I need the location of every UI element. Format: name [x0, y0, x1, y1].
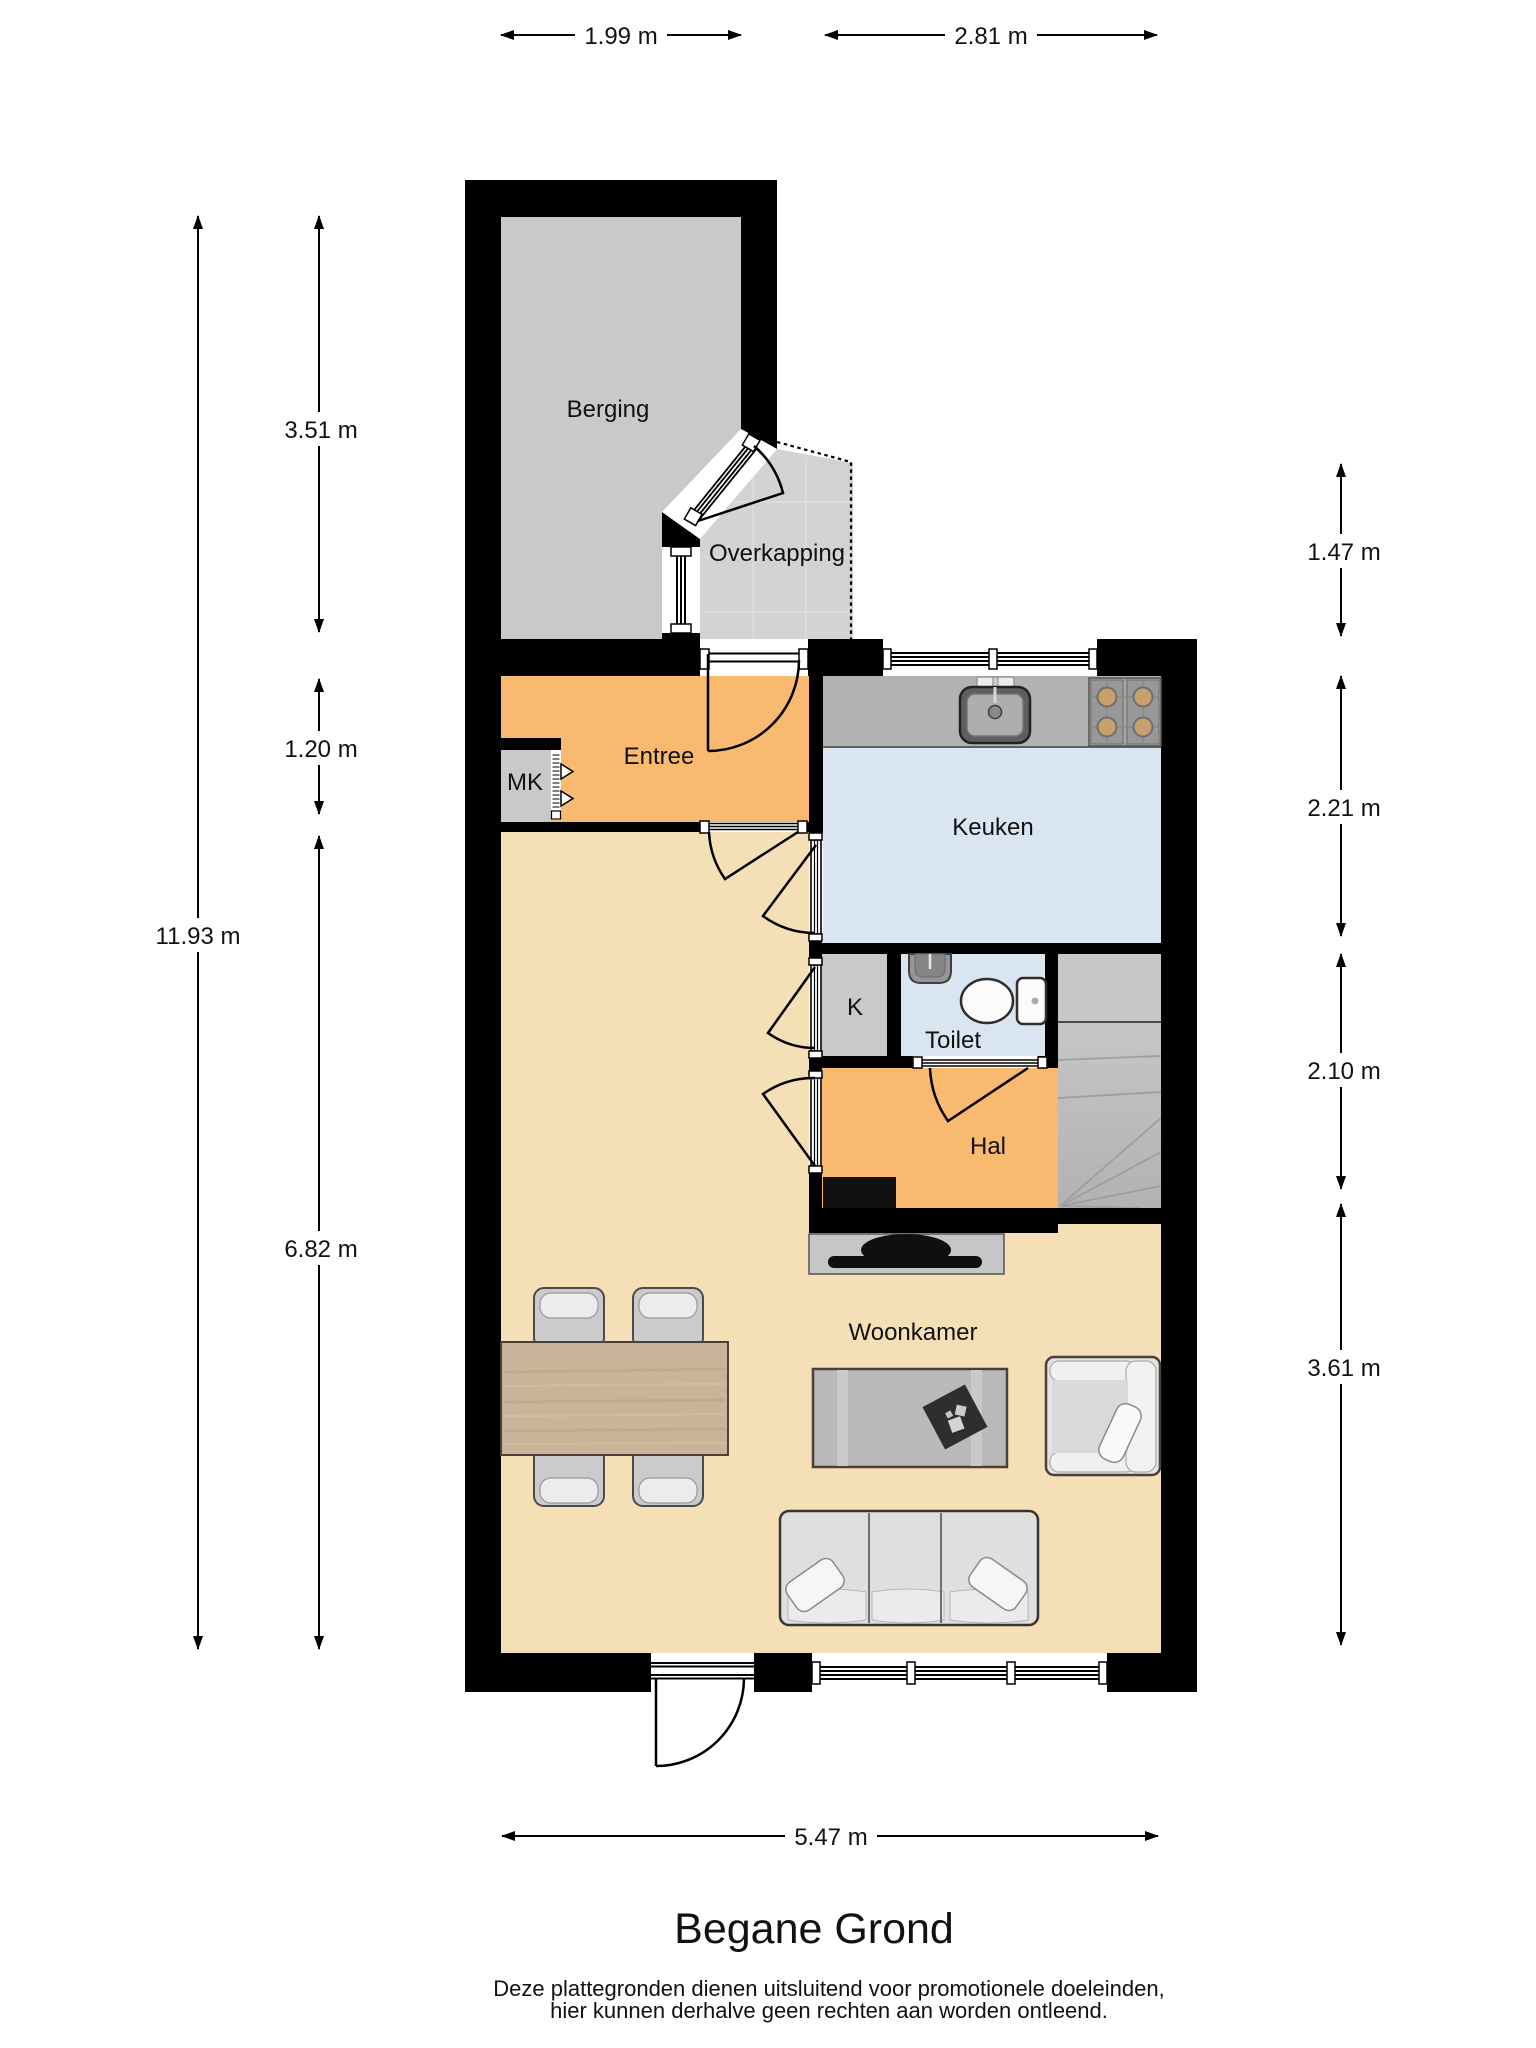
svg-text:5.47 m: 5.47 m: [794, 1824, 867, 1851]
svg-text:K: K: [847, 994, 863, 1021]
svg-text:3.51 m: 3.51 m: [284, 417, 357, 444]
svg-text:Keuken: Keuken: [952, 814, 1033, 841]
svg-text:Hal: Hal: [970, 1133, 1006, 1160]
svg-text:MK: MK: [507, 769, 543, 796]
svg-text:3.61 m: 3.61 m: [1307, 1355, 1380, 1382]
svg-text:Entree: Entree: [624, 743, 695, 770]
svg-text:2.81 m: 2.81 m: [954, 23, 1027, 50]
svg-text:1.99 m: 1.99 m: [584, 23, 657, 50]
svg-text:Berging: Berging: [567, 396, 650, 423]
svg-text:6.82 m: 6.82 m: [284, 1236, 357, 1263]
svg-text:Begane Grond: Begane Grond: [674, 1905, 954, 1953]
svg-text:Woonkamer: Woonkamer: [849, 1319, 978, 1346]
svg-text:1.20 m: 1.20 m: [284, 736, 357, 763]
svg-text:11.93 m: 11.93 m: [156, 923, 241, 950]
svg-text:2.10 m: 2.10 m: [1307, 1058, 1380, 1085]
svg-text:2.21 m: 2.21 m: [1307, 795, 1380, 822]
svg-text:Overkapping: Overkapping: [709, 540, 845, 567]
svg-text:Toilet: Toilet: [925, 1027, 981, 1054]
svg-text:hier kunnen derhalve geen rech: hier kunnen derhalve geen rechten aan wo…: [550, 1998, 1108, 2023]
svg-text:1.47 m: 1.47 m: [1307, 539, 1380, 566]
